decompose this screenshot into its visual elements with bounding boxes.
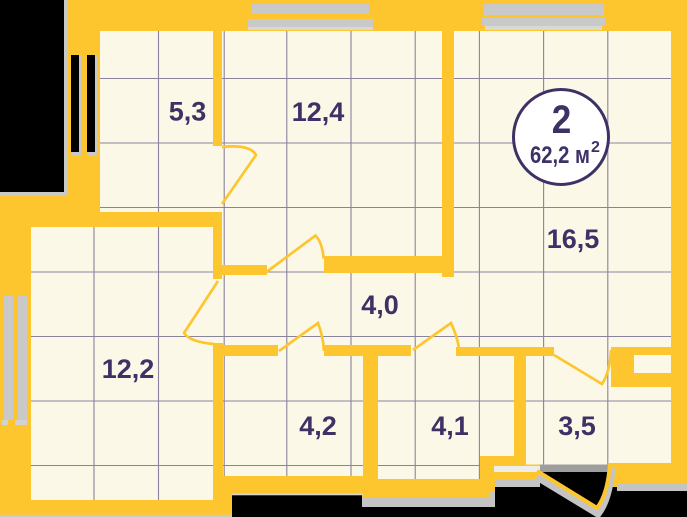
svg-text:2: 2 bbox=[552, 98, 572, 142]
svg-text:2: 2 bbox=[591, 139, 600, 156]
svg-text:12,2: 12,2 bbox=[102, 354, 155, 384]
svg-text:4,1: 4,1 bbox=[431, 411, 469, 441]
svg-text:5,3: 5,3 bbox=[169, 97, 207, 127]
svg-text:3,5: 3,5 bbox=[558, 411, 596, 441]
svg-text:4,2: 4,2 bbox=[299, 411, 337, 441]
svg-text:4,0: 4,0 bbox=[361, 290, 399, 320]
svg-text:16,5: 16,5 bbox=[547, 224, 600, 254]
svg-text:62,2 м: 62,2 м bbox=[530, 142, 590, 169]
svg-text:12,4: 12,4 bbox=[292, 97, 345, 127]
